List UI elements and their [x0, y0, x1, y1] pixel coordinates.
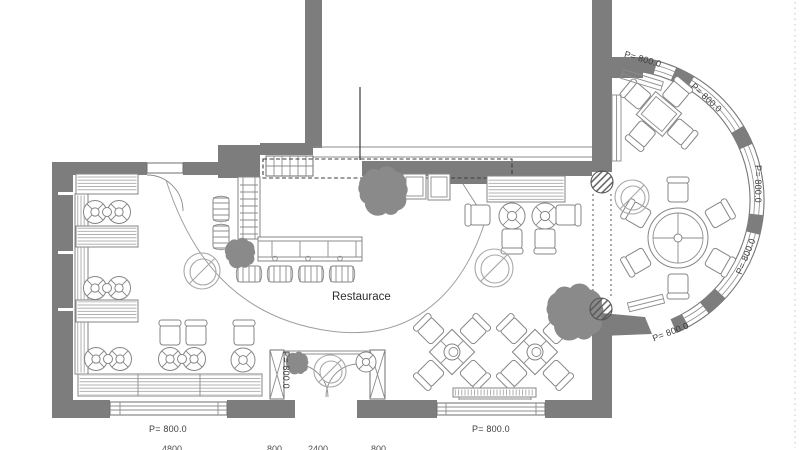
- wall-bottom-c: [357, 400, 437, 418]
- wall-top-right-block: [450, 176, 487, 184]
- wall-junction-block: [218, 145, 260, 178]
- window-bottom-left: [110, 402, 227, 415]
- window-bottom-right: [437, 403, 545, 415]
- wall-joint: [58, 308, 73, 311]
- wall-joint: [58, 192, 73, 195]
- wall-top-left-b: [183, 162, 218, 175]
- wall-bottom-b: [227, 400, 295, 418]
- door-top-left: [147, 163, 183, 211]
- wall-upper-right-vertical: [592, 0, 612, 172]
- wall-left: [52, 175, 73, 418]
- upper-room-line: [313, 147, 592, 157]
- floor-plan: Restaurace P= 800.0 P= 800.0 P= 800.0 P=…: [0, 0, 800, 450]
- column-hatched-bottom: [590, 298, 612, 320]
- dimension-left-window: 4800: [162, 444, 182, 450]
- parapet-label-window-left: P= 800.0: [149, 424, 187, 434]
- parapet-label-vestibule: P= 800.0: [281, 351, 291, 389]
- wall-top-left-a: [52, 162, 147, 175]
- room-label: Restaurace: [332, 291, 391, 303]
- wall-upper-left-vertical: [305, 0, 322, 148]
- furniture: [75, 55, 736, 416]
- dimension-entry-right: 800: [371, 444, 386, 450]
- wall-bottom-a: [52, 400, 110, 418]
- column-hatched-top: [591, 171, 613, 193]
- parapet-label-bay-right: P= 800.0: [753, 165, 763, 203]
- dimension-entry: 2400: [308, 444, 328, 450]
- wall-joint: [58, 251, 73, 254]
- bay-opening-dotted: [593, 194, 611, 298]
- dimension-entry-left: 800: [267, 444, 282, 450]
- wall-top-mid: [260, 143, 313, 155]
- floor-plan-canvas: [0, 0, 800, 450]
- parapet-label-window-right: P= 800.0: [472, 424, 510, 434]
